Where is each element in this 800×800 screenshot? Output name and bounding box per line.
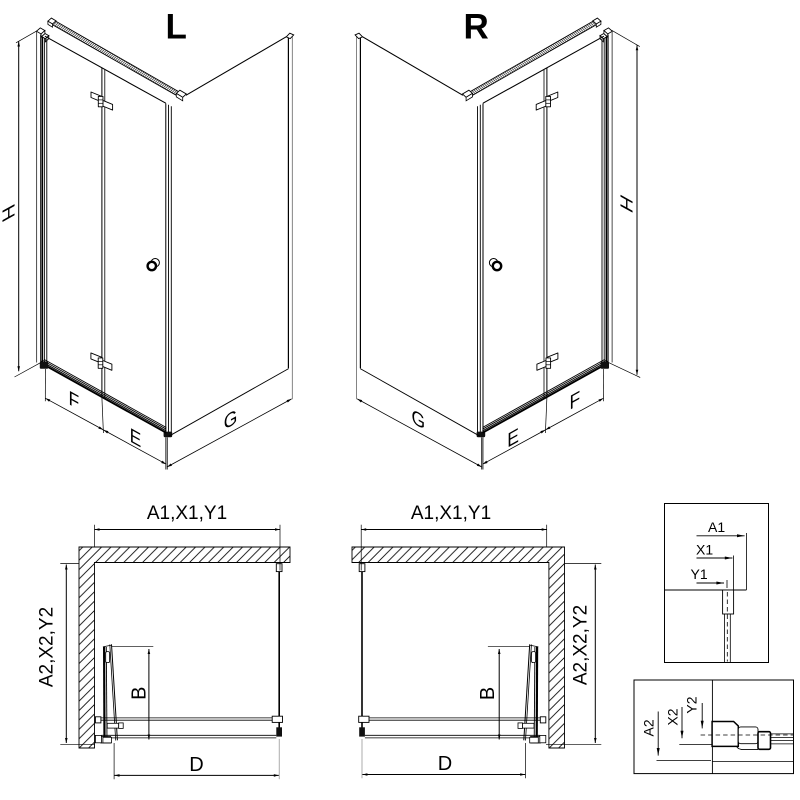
svg-text:D: D	[189, 754, 203, 776]
svg-text:A1: A1	[708, 519, 725, 535]
svg-text:A2: A2	[640, 719, 656, 736]
svg-text:A2,X2,Y2: A2,X2,Y2	[37, 607, 58, 687]
svg-text:A1,X1,Y1: A1,X1,Y1	[411, 503, 491, 524]
svg-text:Y2: Y2	[684, 696, 700, 713]
svg-text:A1,X1,Y1: A1,X1,Y1	[147, 503, 227, 524]
svg-text:B: B	[477, 687, 499, 700]
svg-text:X2: X2	[665, 708, 681, 725]
svg-text:A2,X2,Y2: A2,X2,Y2	[571, 605, 592, 685]
svg-text:B: B	[129, 687, 151, 700]
svg-text:D: D	[438, 753, 452, 775]
svg-text:X1: X1	[696, 542, 713, 558]
svg-text:R: R	[464, 8, 489, 47]
svg-text:L: L	[166, 8, 187, 47]
svg-text:Y1: Y1	[691, 566, 708, 582]
